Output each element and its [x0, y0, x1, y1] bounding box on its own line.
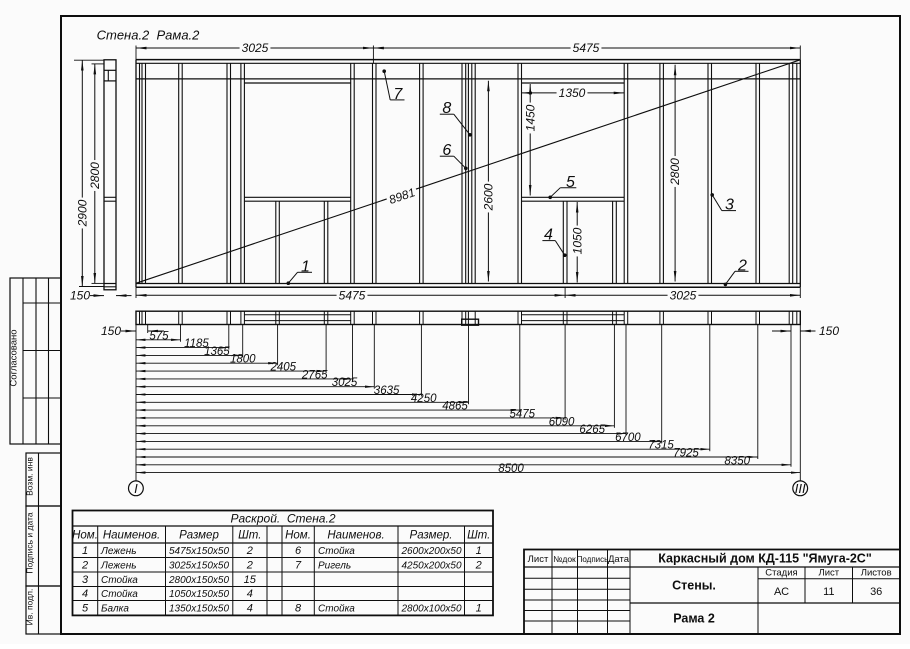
svg-text:1350: 1350 [559, 86, 586, 100]
svg-text:Размер.: Размер. [410, 530, 453, 542]
svg-text:Рама 2: Рама 2 [673, 612, 715, 626]
svg-text:5: 5 [82, 603, 89, 615]
svg-text:Раскрой. Стена.2: Раскрой. Стена.2 [231, 512, 336, 526]
svg-text:Каркасный дом КД-115 "Ямуга-2С: Каркасный дом КД-115 "Ямуга-2С" [658, 552, 872, 566]
svg-text:3025: 3025 [670, 288, 697, 302]
svg-text:Размер: Размер [179, 530, 219, 542]
svg-text:Лист: Лист [528, 554, 549, 565]
svg-text:2600х200х50: 2600х200х50 [401, 546, 462, 557]
svg-text:Стены.: Стены. [672, 579, 716, 593]
svg-text:1450: 1450 [523, 104, 537, 131]
svg-text:1365: 1365 [204, 346, 230, 358]
svg-text:6265: 6265 [579, 424, 605, 436]
svg-text:Шт.: Шт. [467, 530, 490, 542]
svg-text:8: 8 [295, 603, 302, 615]
svg-text:Ном.: Ном. [72, 530, 98, 542]
svg-text:Лист: Лист [818, 568, 839, 579]
svg-text:Ригель: Ригель [318, 561, 351, 572]
svg-text:2405: 2405 [270, 362, 297, 374]
svg-text:4: 4 [247, 603, 253, 615]
svg-text:Возм. инв: Возм. инв [25, 457, 35, 496]
svg-text:4250х200х50: 4250х200х50 [402, 561, 462, 572]
svg-text:1: 1 [82, 545, 88, 557]
svg-text:2600: 2600 [481, 183, 495, 211]
svg-text:Дата: Дата [608, 554, 630, 565]
svg-text:150: 150 [70, 289, 90, 303]
svg-text:5475: 5475 [339, 288, 366, 302]
svg-text:№док: №док [553, 554, 576, 564]
svg-text:4250: 4250 [411, 393, 437, 405]
svg-text:Ном.: Ном. [285, 530, 311, 542]
svg-text:Стойка: Стойка [101, 589, 138, 600]
svg-text:150: 150 [101, 324, 121, 338]
svg-text:8350: 8350 [724, 455, 750, 467]
svg-text:36: 36 [870, 586, 882, 598]
svg-text:4: 4 [82, 588, 88, 600]
svg-text:2: 2 [246, 545, 253, 557]
svg-text:5475: 5475 [510, 408, 536, 420]
svg-text:Стойка: Стойка [318, 604, 355, 615]
svg-text:Наименов.: Наименов. [103, 530, 160, 542]
svg-text:1350х150х50: 1350х150х50 [169, 604, 229, 615]
svg-text:Стойка: Стойка [101, 575, 138, 586]
svg-text:Стена.2 Рама.2: Стена.2 Рама.2 [97, 28, 201, 43]
svg-text:Лежень: Лежень [100, 561, 137, 572]
svg-text:6: 6 [442, 142, 451, 159]
svg-text:8: 8 [442, 100, 451, 117]
svg-text:4865: 4865 [442, 401, 468, 413]
svg-text:I: I [134, 481, 138, 496]
svg-text:3025: 3025 [242, 41, 269, 55]
svg-text:2800х150х50: 2800х150х50 [168, 575, 229, 586]
svg-text:575: 575 [149, 330, 169, 342]
svg-text:Наименов.: Наименов. [327, 530, 384, 542]
svg-text:2: 2 [81, 560, 88, 572]
svg-text:Лежень: Лежень [100, 546, 137, 557]
svg-text:3025х150х50: 3025х150х50 [169, 561, 229, 572]
svg-text:1800: 1800 [230, 354, 256, 366]
svg-text:15: 15 [244, 574, 257, 586]
svg-text:2800: 2800 [88, 162, 102, 190]
svg-text:АС: АС [774, 586, 789, 598]
svg-text:3025: 3025 [332, 377, 358, 389]
svg-text:1050х150х50: 1050х150х50 [169, 589, 229, 600]
svg-text:8981: 8981 [387, 185, 417, 207]
svg-text:5: 5 [566, 174, 575, 191]
svg-text:2900: 2900 [75, 199, 89, 227]
svg-text:5475: 5475 [573, 41, 600, 55]
svg-text:5475х150х50: 5475х150х50 [169, 546, 229, 557]
svg-text:2: 2 [737, 257, 747, 274]
svg-text:Подпись и дата: Подпись и дата [25, 512, 35, 573]
svg-text:Согласовано: Согласовано [9, 329, 20, 386]
svg-text:Подпись: Подпись [577, 555, 609, 564]
svg-text:1050: 1050 [570, 227, 584, 254]
svg-text:6: 6 [295, 545, 302, 557]
svg-text:Балка: Балка [101, 604, 129, 615]
svg-text:7: 7 [295, 560, 302, 572]
svg-text:2: 2 [246, 560, 253, 572]
svg-text:Стадия: Стадия [765, 568, 797, 579]
svg-text:3635: 3635 [374, 385, 400, 397]
svg-text:4: 4 [247, 588, 253, 600]
svg-text:7: 7 [393, 86, 403, 103]
svg-text:1: 1 [301, 258, 310, 275]
svg-text:Стойка: Стойка [318, 546, 355, 557]
svg-text:6090: 6090 [549, 416, 575, 428]
svg-text:III: III [795, 481, 806, 496]
svg-text:8500: 8500 [498, 463, 524, 475]
svg-text:11: 11 [823, 586, 834, 598]
svg-text:2: 2 [475, 560, 482, 572]
svg-text:7315: 7315 [648, 440, 674, 452]
svg-text:2800х100х50: 2800х100х50 [401, 604, 462, 615]
svg-text:1: 1 [476, 545, 482, 557]
svg-text:150: 150 [819, 324, 839, 338]
svg-text:Листов: Листов [861, 568, 892, 579]
svg-text:6700: 6700 [615, 432, 641, 444]
svg-text:3: 3 [725, 197, 734, 214]
svg-text:Шт.: Шт. [238, 530, 261, 542]
svg-text:4: 4 [544, 227, 553, 244]
svg-text:2765: 2765 [301, 369, 328, 381]
svg-text:3: 3 [82, 574, 89, 586]
svg-text:1: 1 [476, 603, 482, 615]
svg-text:2800: 2800 [668, 158, 682, 186]
svg-text:7925: 7925 [673, 448, 699, 460]
svg-text:Ив. подл.: Ив. подл. [25, 589, 35, 626]
